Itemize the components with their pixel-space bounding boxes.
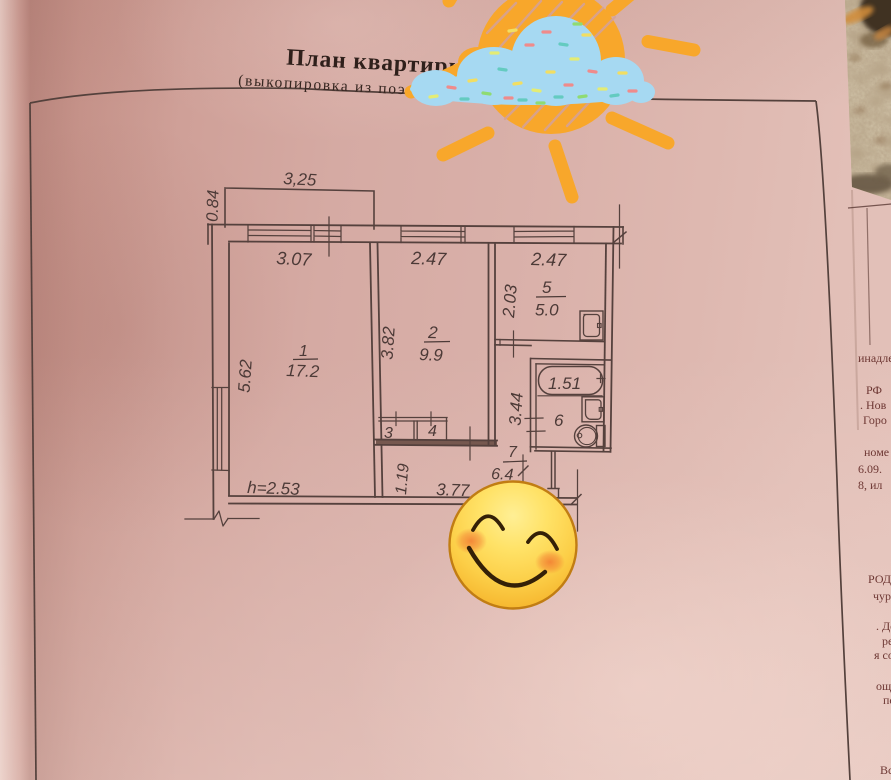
svg-text:6: 6 xyxy=(554,411,564,430)
svg-text:3.77: 3.77 xyxy=(436,480,470,500)
svg-text:я со: я со xyxy=(874,648,891,662)
svg-text:Вс: Вс xyxy=(880,763,891,777)
svg-text:5.62: 5.62 xyxy=(235,358,256,393)
svg-text:1: 1 xyxy=(299,343,308,360)
svg-text:5.0: 5.0 xyxy=(535,301,559,320)
svg-text:2.03: 2.03 xyxy=(499,283,521,319)
svg-text:. Нов: . Нов xyxy=(860,398,887,412)
svg-text:17.2: 17.2 xyxy=(286,361,320,381)
svg-text:ощу: ощу xyxy=(876,679,891,693)
svg-text:6.09.: 6.09. xyxy=(858,462,882,476)
svg-text:4: 4 xyxy=(428,423,437,440)
svg-text:0.84: 0.84 xyxy=(204,189,223,222)
svg-text:1.51: 1.51 xyxy=(548,374,581,393)
svg-text:8, ил: 8, ил xyxy=(858,478,882,492)
svg-text:. Дс: . Дс xyxy=(876,619,891,633)
svg-text:инадле: инадле xyxy=(858,351,891,365)
svg-text:3.07: 3.07 xyxy=(276,248,313,270)
svg-text:Горо: Горо xyxy=(863,413,887,427)
svg-text:9.9: 9.9 xyxy=(419,345,444,365)
svg-text:ре: ре xyxy=(882,634,891,648)
svg-text:5: 5 xyxy=(542,278,552,297)
svg-text:номе: номе xyxy=(864,445,889,459)
svg-text:3.44: 3.44 xyxy=(506,392,527,426)
svg-text:3: 3 xyxy=(384,425,393,442)
svg-text:пс: пс xyxy=(883,693,891,707)
svg-text:РФ: РФ xyxy=(866,383,882,397)
svg-text:РОД: РОД xyxy=(868,572,891,586)
svg-text:чурб: чурб xyxy=(873,589,891,603)
svg-text:3,25: 3,25 xyxy=(283,169,318,190)
svg-text:3.82: 3.82 xyxy=(378,325,399,360)
svg-text:2.47: 2.47 xyxy=(410,248,448,269)
svg-text:h=2.53: h=2.53 xyxy=(247,478,301,499)
svg-text:2.47: 2.47 xyxy=(530,249,568,270)
svg-text:1.19: 1.19 xyxy=(393,463,413,496)
svg-text:2: 2 xyxy=(427,323,439,342)
svg-text:7: 7 xyxy=(508,444,518,461)
